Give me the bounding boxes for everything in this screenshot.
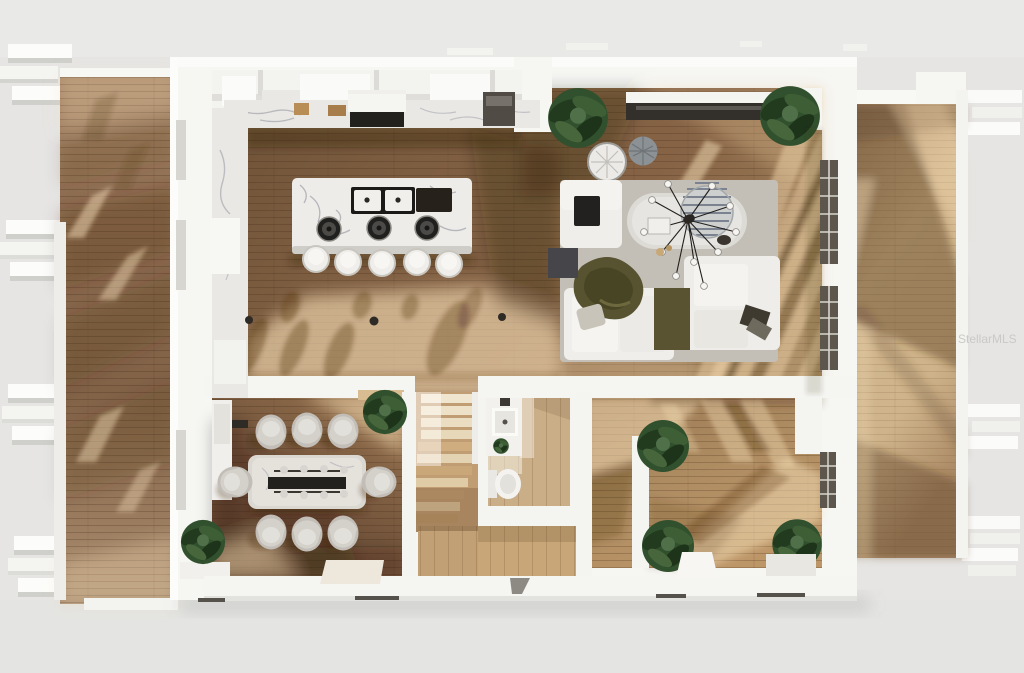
svg-text:StellarMLS: StellarMLS: [958, 332, 1017, 346]
